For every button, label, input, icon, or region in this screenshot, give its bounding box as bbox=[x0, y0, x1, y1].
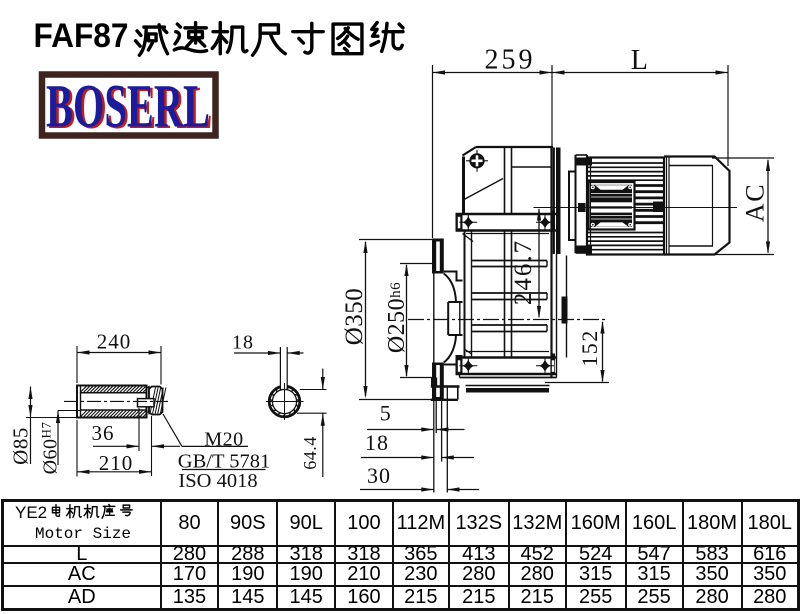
svg-text:152: 152 bbox=[577, 329, 602, 367]
svg-text:240: 240 bbox=[97, 330, 132, 354]
svg-text:Motor Size: Motor Size bbox=[35, 525, 131, 542]
svg-text:246.7: 246.7 bbox=[510, 239, 537, 305]
svg-text:M20: M20 bbox=[204, 429, 243, 451]
svg-text:YE2: YE2 bbox=[15, 503, 47, 522]
svg-text:L: L bbox=[631, 45, 650, 76]
svg-text:18: 18 bbox=[365, 430, 389, 455]
svg-text:36: 36 bbox=[92, 421, 115, 445]
svg-text:AC: AC bbox=[741, 183, 770, 222]
svg-text:210: 210 bbox=[99, 451, 134, 475]
svg-text:5: 5 bbox=[380, 401, 393, 426]
svg-text:18: 18 bbox=[232, 332, 254, 354]
svg-text:259: 259 bbox=[485, 45, 536, 76]
svg-text:30: 30 bbox=[367, 463, 391, 488]
svg-text:ISO 4018: ISO 4018 bbox=[178, 470, 257, 492]
svg-text:BOSERL: BOSERL bbox=[46, 74, 210, 141]
svg-text:Ø85: Ø85 bbox=[9, 427, 33, 465]
svg-text:Ø350: Ø350 bbox=[341, 288, 368, 346]
svg-text:64.4: 64.4 bbox=[300, 436, 320, 470]
svg-text:FAF87: FAF87 bbox=[34, 17, 129, 55]
